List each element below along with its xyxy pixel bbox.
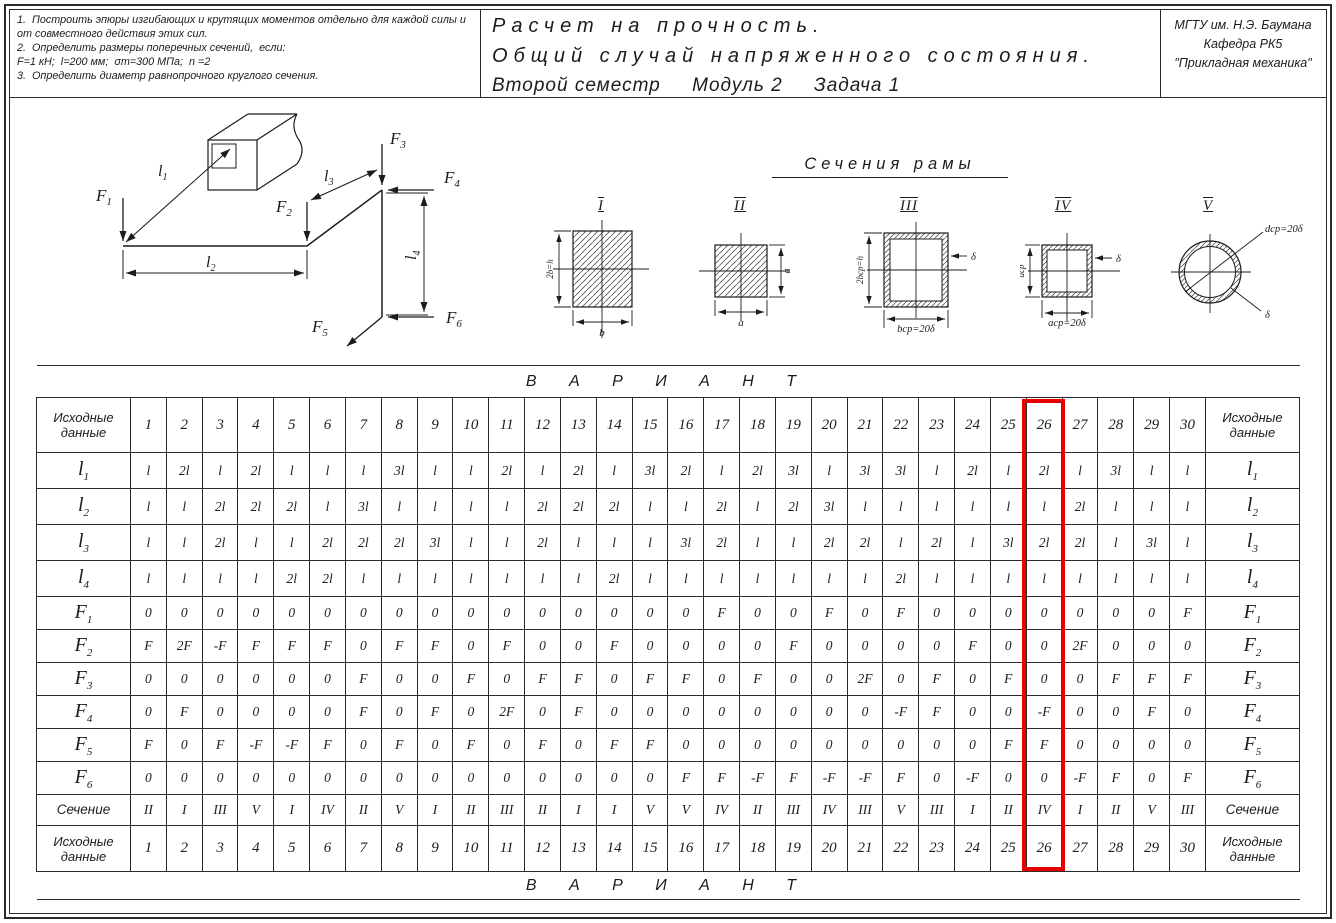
table-cell: 0 <box>1134 630 1170 663</box>
table-cell: 0 <box>489 597 525 630</box>
table-cell: l <box>775 561 811 597</box>
table-cell: 0 <box>345 597 381 630</box>
table-cell: l <box>166 561 202 597</box>
table-cell: 0 <box>1134 729 1170 762</box>
table-cell: V <box>632 795 668 826</box>
table-cell: 0 <box>1026 663 1062 696</box>
table-cell: l <box>310 489 346 525</box>
table-cell: 0 <box>417 762 453 795</box>
table-cell: 2l <box>668 453 704 489</box>
table-cell: 2l <box>1026 453 1062 489</box>
table-cell: 0 <box>668 630 704 663</box>
section-4-bottom-label: aср=20δ <box>1048 318 1087 329</box>
table-cell: l <box>990 561 1026 597</box>
table-cell: l <box>489 489 525 525</box>
table-cell: 0 <box>310 696 346 729</box>
row-label: Сечение <box>37 795 131 826</box>
table-cell: 0 <box>310 762 346 795</box>
table-cell: -F <box>811 762 847 795</box>
table-cell: 2l <box>1062 489 1098 525</box>
table-cell: 0 <box>704 696 740 729</box>
section-5-thickness-label: δ <box>1265 310 1271 321</box>
table-cell: 0 <box>668 597 704 630</box>
table-cell: 0 <box>668 696 704 729</box>
table-cell: I <box>1062 795 1098 826</box>
table-cell: 2l <box>345 525 381 561</box>
column-header: 27 <box>1062 398 1098 453</box>
table-cell: l <box>740 489 776 525</box>
column-header: 30 <box>1170 398 1206 453</box>
table-cell: F <box>1134 696 1170 729</box>
table-cell: l <box>202 561 238 597</box>
table-cell: 2l <box>1062 525 1098 561</box>
table-cell: II <box>740 795 776 826</box>
table-cell: 0 <box>632 597 668 630</box>
table-cell: 0 <box>489 762 525 795</box>
table-cell: l <box>417 453 453 489</box>
table-cell: l <box>453 561 489 597</box>
table-row: l2ll2l2l2ll3lllll2l2l2lll2ll2l3lllllll2l… <box>37 489 1300 525</box>
table-cell: 0 <box>847 597 883 630</box>
force-f3-label: F3 <box>389 129 406 151</box>
column-header: 10 <box>453 398 489 453</box>
table-cell: V <box>381 795 417 826</box>
column-header: 20 <box>811 398 847 453</box>
table-cell: V <box>238 795 274 826</box>
table-cell: 0 <box>560 762 596 795</box>
table-cell: l <box>381 561 417 597</box>
table-cell: l <box>883 489 919 525</box>
table-cell: 0 <box>775 597 811 630</box>
corner-label: Исходныеданные <box>37 398 131 453</box>
table-cell: F <box>131 630 167 663</box>
table-row: F2F2F-FFFF0FF0F00F0000F0000F002F000F2 <box>37 630 1300 663</box>
section-4-numeral: IV <box>1055 198 1071 215</box>
column-header: 6 <box>310 398 346 453</box>
table-cell: 2F <box>166 630 202 663</box>
table-cell: 3l <box>417 525 453 561</box>
column-header: 23 <box>919 398 955 453</box>
org-line-1: МГТУ им. Н.Э. Баумана <box>1163 16 1323 35</box>
force-f5-label: F5 <box>311 317 328 339</box>
table-cell: 0 <box>417 729 453 762</box>
table-cell: F <box>1026 729 1062 762</box>
table-cell: 2l <box>847 525 883 561</box>
column-header: 2 <box>166 826 202 872</box>
row-label: l1 <box>37 453 131 489</box>
length-l1-label: l1 <box>158 163 167 183</box>
header-vertical-divider-1 <box>480 10 481 98</box>
row-label: F6 <box>37 762 131 795</box>
table-cell: l <box>740 561 776 597</box>
table-cell: V <box>883 795 919 826</box>
table-cell: 0 <box>775 696 811 729</box>
table-cell: l <box>1062 561 1098 597</box>
table-cell: 0 <box>525 597 561 630</box>
sections-title: Сечения рамы <box>772 155 1008 178</box>
table-row: F3000000F00F0FF0FF0F002F0F0F00FFFF3 <box>37 663 1300 696</box>
table-cell: 0 <box>238 696 274 729</box>
table-cell: l <box>919 453 955 489</box>
table-cell: F <box>166 696 202 729</box>
table-cell: l <box>489 525 525 561</box>
column-header: 17 <box>704 826 740 872</box>
table-cell: F <box>560 663 596 696</box>
table-cell: 3l <box>883 453 919 489</box>
table-cell: -F <box>202 630 238 663</box>
table-cell: 0 <box>345 630 381 663</box>
table-cell: l <box>310 453 346 489</box>
table-cell: 0 <box>238 597 274 630</box>
force-f5-arrow <box>347 317 382 346</box>
table-cell: l <box>131 489 167 525</box>
table-cell: F <box>345 696 381 729</box>
table-cell: 0 <box>131 597 167 630</box>
column-header: 30 <box>1170 826 1206 872</box>
table-cell: l <box>274 525 310 561</box>
table-cell: l <box>1026 561 1062 597</box>
table-cell: 0 <box>131 762 167 795</box>
table-cell: 2l <box>883 561 919 597</box>
table-cell: 2l <box>775 489 811 525</box>
table-cell: 3l <box>811 489 847 525</box>
section-4-side-label: aср <box>1020 264 1026 277</box>
table-cell: 0 <box>166 597 202 630</box>
column-header: 12 <box>525 398 561 453</box>
table-cell: 0 <box>740 597 776 630</box>
column-header: 7 <box>345 826 381 872</box>
table-cell: F <box>811 597 847 630</box>
force-f2-label: F2 <box>275 197 292 219</box>
table-cell: l <box>274 453 310 489</box>
column-header: 11 <box>489 826 525 872</box>
table-cell: F <box>990 729 1026 762</box>
table-cell: -F <box>955 762 991 795</box>
table-cell: l <box>1098 489 1134 525</box>
table-cell: l <box>704 453 740 489</box>
table-cell: l <box>417 489 453 525</box>
column-header: 1 <box>131 826 167 872</box>
table-cell: -F <box>1026 696 1062 729</box>
table-cell: 0 <box>596 597 632 630</box>
table-cell: F <box>1170 762 1206 795</box>
table-cell: l <box>238 525 274 561</box>
table-cell: l <box>811 561 847 597</box>
table-cell: l <box>381 489 417 525</box>
table-cell: F <box>1134 663 1170 696</box>
table-cell: 0 <box>560 729 596 762</box>
table-cell: F <box>310 729 346 762</box>
table-cell: 0 <box>202 597 238 630</box>
table-cell: 0 <box>274 597 310 630</box>
table-cell: III <box>202 795 238 826</box>
table-cell: l <box>740 525 776 561</box>
task-item-2: 2. Определить размеры поперечных сечений… <box>17 41 473 55</box>
table-header-row: Исходныеданные12345678910111213141516171… <box>37 398 1300 453</box>
column-header: 28 <box>1098 826 1134 872</box>
table-cell: l <box>1098 561 1134 597</box>
table-cell: l <box>668 489 704 525</box>
table-cell: 3l <box>847 453 883 489</box>
column-header: 27 <box>1062 826 1098 872</box>
table-cell: F <box>489 630 525 663</box>
column-header: 26 <box>1026 398 1062 453</box>
column-header: 10 <box>453 826 489 872</box>
title-line-3: Второй семестр Модуль 2 Задача 1 <box>492 75 1152 97</box>
table-cell: IV <box>1026 795 1062 826</box>
column-header: 24 <box>955 826 991 872</box>
table-cell: F <box>883 597 919 630</box>
table-cell: 0 <box>381 663 417 696</box>
row-label: F1 <box>37 597 131 630</box>
table-cell: 0 <box>489 729 525 762</box>
variants-table: В А Р И А Н ТИсходныеданные1234567891011… <box>36 365 1300 900</box>
table-cell: 2l <box>310 561 346 597</box>
section-1-numeral: I <box>598 198 604 215</box>
table-cell: l <box>919 489 955 525</box>
table-cell: 0 <box>596 696 632 729</box>
table-cell: 2l <box>596 489 632 525</box>
table-cell: l <box>166 525 202 561</box>
table-cell: 0 <box>1098 729 1134 762</box>
table-cell: l <box>1170 525 1206 561</box>
section-5-numeral: V <box>1203 198 1213 215</box>
table-cell: 0 <box>1170 729 1206 762</box>
table-cell: 0 <box>1170 630 1206 663</box>
header-vertical-divider-2 <box>1160 10 1161 98</box>
table-cell: 2l <box>238 489 274 525</box>
table-cell: F <box>381 630 417 663</box>
table-cell: 2F <box>489 696 525 729</box>
column-header: 21 <box>847 398 883 453</box>
table-cell: 0 <box>668 729 704 762</box>
column-header: 22 <box>883 826 919 872</box>
table-cell: 0 <box>274 762 310 795</box>
table-cell: 0 <box>990 630 1026 663</box>
column-header: 3 <box>202 398 238 453</box>
table-cell: 0 <box>919 597 955 630</box>
table-cell: 0 <box>883 630 919 663</box>
table-cell: l <box>1170 453 1206 489</box>
table-cell: F <box>417 696 453 729</box>
table-cell: 2F <box>847 663 883 696</box>
table-cell: III <box>1170 795 1206 826</box>
table-cell: 0 <box>811 696 847 729</box>
table-cell: 2l <box>525 489 561 525</box>
table-cell: 2l <box>596 561 632 597</box>
row-label: F4 <box>1205 696 1299 729</box>
table-cell: 2l <box>1026 525 1062 561</box>
table-cell: F <box>632 729 668 762</box>
table-cell: 0 <box>310 597 346 630</box>
table-cell: 0 <box>632 762 668 795</box>
table-cell: 0 <box>166 762 202 795</box>
column-header: 8 <box>381 398 417 453</box>
table-cell: 0 <box>775 663 811 696</box>
column-header: 19 <box>775 826 811 872</box>
task-item-3: 3. Определить диаметр равнопрочного круг… <box>17 69 473 83</box>
table-cell: III <box>775 795 811 826</box>
table-cell: 0 <box>811 729 847 762</box>
table-cell: F <box>919 696 955 729</box>
task-given-values: F=1 кН; l=200 мм; σт=300 МПа; n =2 <box>17 55 473 69</box>
section-3-drawing: 2bср=h bср=20δ δ <box>855 218 990 348</box>
table-cell: F <box>417 630 453 663</box>
column-header: 3 <box>202 826 238 872</box>
table-cell: 2l <box>381 525 417 561</box>
force-labels: F1 F2 F3 F4 F5 F6 <box>95 129 462 339</box>
table-cell: 0 <box>1026 597 1062 630</box>
table-cell: 0 <box>1170 696 1206 729</box>
table-cell: F <box>704 762 740 795</box>
table-cell: V <box>668 795 704 826</box>
table-cell: F <box>525 729 561 762</box>
table-cell: F <box>704 597 740 630</box>
table-cell: IV <box>704 795 740 826</box>
row-label: F3 <box>1205 663 1299 696</box>
table-cell: l <box>453 453 489 489</box>
column-header: 24 <box>955 398 991 453</box>
table-cell: 2l <box>310 525 346 561</box>
corner-label: Исходныеданные <box>1205 826 1299 872</box>
table-cell: 0 <box>990 597 1026 630</box>
column-header: 7 <box>345 398 381 453</box>
force-f4-label: F4 <box>443 168 460 190</box>
table-cell: l <box>1062 453 1098 489</box>
table-cell: 0 <box>525 630 561 663</box>
table-cell: 3l <box>668 525 704 561</box>
sheet-title: Расчет на прочность. Общий случай напряж… <box>492 15 1152 97</box>
table-cell: l <box>560 525 596 561</box>
table-cell: 2l <box>166 453 202 489</box>
table-cell: l <box>417 561 453 597</box>
table-cell: F <box>453 663 489 696</box>
table-cell: -F <box>238 729 274 762</box>
table-cell: l <box>131 453 167 489</box>
corner-label: Исходныеданные <box>1205 398 1299 453</box>
table-cell: 3l <box>345 489 381 525</box>
row-label: l2 <box>1205 489 1299 525</box>
table-cell: 0 <box>632 630 668 663</box>
column-header: 21 <box>847 826 883 872</box>
column-header: 25 <box>990 398 1026 453</box>
table-cell: l <box>525 453 561 489</box>
section-1-width-label: b <box>599 327 605 339</box>
table-cell: 0 <box>740 630 776 663</box>
table-cell: 0 <box>274 663 310 696</box>
table-cell: 0 <box>811 630 847 663</box>
table-cell: F <box>596 729 632 762</box>
section-2-bottom-label: a <box>738 317 744 329</box>
table-cell: l <box>883 525 919 561</box>
table-cell: 0 <box>955 597 991 630</box>
table-cell: 0 <box>775 729 811 762</box>
table-cell: 2l <box>489 453 525 489</box>
table-cell: 0 <box>166 663 202 696</box>
column-header: 14 <box>596 826 632 872</box>
table-cell: l <box>1098 525 1134 561</box>
table-cell: III <box>489 795 525 826</box>
table-cell: I <box>417 795 453 826</box>
table-cell: 3l <box>632 453 668 489</box>
table-cell: F <box>560 696 596 729</box>
table-cell: I <box>274 795 310 826</box>
force-f1-label: F1 <box>95 186 112 208</box>
table-cell: l <box>775 525 811 561</box>
table-cell: l <box>1170 561 1206 597</box>
table-cell: 0 <box>704 663 740 696</box>
table-cell: 0 <box>1134 597 1170 630</box>
column-header: 23 <box>919 826 955 872</box>
table-row: F10000000000000000F00F0F0000000FF1 <box>37 597 1300 630</box>
table-cell: I <box>596 795 632 826</box>
table-cell: F <box>274 630 310 663</box>
section-3-height-label: 2bср=h <box>855 255 865 284</box>
table-cell: F <box>525 663 561 696</box>
table-cell: l <box>131 561 167 597</box>
column-header: 1 <box>131 398 167 453</box>
table-cell: 0 <box>1026 630 1062 663</box>
table-cell: l <box>704 561 740 597</box>
table-cell: 2l <box>811 525 847 561</box>
table-cell: 0 <box>1026 762 1062 795</box>
section-4-drawing: aср aср=20δ δ <box>1020 218 1155 348</box>
table-cell: 0 <box>1062 696 1098 729</box>
table-cell: l <box>596 525 632 561</box>
column-header: 19 <box>775 398 811 453</box>
table-cell: l <box>1134 453 1170 489</box>
table-cell: l <box>345 453 381 489</box>
column-header: 4 <box>238 398 274 453</box>
table-cell: F <box>596 630 632 663</box>
table-cell: 2l <box>740 453 776 489</box>
table-cell: 0 <box>1062 663 1098 696</box>
title-line-1: Расчет на прочность. <box>492 15 1152 38</box>
table-cell: l <box>202 453 238 489</box>
table-cell: 0 <box>417 663 453 696</box>
table-cell: l <box>166 489 202 525</box>
task-list: 1. Построить эпюры изгибающих и крутящих… <box>17 13 473 83</box>
column-header: 18 <box>740 826 776 872</box>
section-3-width-label: bср=20δ <box>897 324 936 335</box>
column-header: 8 <box>381 826 417 872</box>
table-row: l3ll2lll2l2l2l3lll2llll3l2lll2l2ll2ll3l2… <box>37 525 1300 561</box>
section-5-drawing: dср=20δ δ <box>1165 218 1325 348</box>
table-cell: III <box>847 795 883 826</box>
table-cell: l <box>955 561 991 597</box>
column-header: 9 <box>417 826 453 872</box>
table-cell: 0 <box>990 762 1026 795</box>
header-divider <box>10 97 1326 98</box>
table-cell: 2l <box>560 489 596 525</box>
task-item-1: 1. Построить эпюры изгибающих и крутящих… <box>17 13 473 41</box>
table-cell: II <box>525 795 561 826</box>
table-cell: 0 <box>202 663 238 696</box>
row-label: Сечение <box>1205 795 1299 826</box>
table-cell: 0 <box>453 597 489 630</box>
row-label: l1 <box>1205 453 1299 489</box>
table-cell: 3l <box>990 525 1026 561</box>
table-cell: l <box>596 453 632 489</box>
table-cell: 0 <box>345 729 381 762</box>
table-cell: 2l <box>704 525 740 561</box>
table-cell: l <box>238 561 274 597</box>
table-row: F40F0000F0F02F0F00000000-FF00-F00F0F4 <box>37 696 1300 729</box>
table-cell: 0 <box>740 696 776 729</box>
beam-tube-sketch <box>208 114 302 190</box>
table-cell: 3l <box>1098 453 1134 489</box>
table-cell: l <box>453 489 489 525</box>
